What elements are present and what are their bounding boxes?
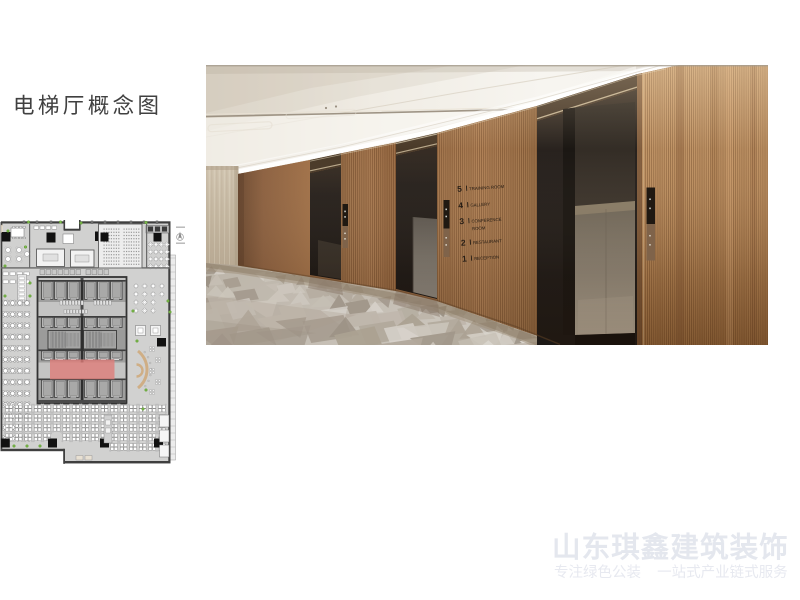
svg-text:ROOM: ROOM	[472, 225, 486, 231]
